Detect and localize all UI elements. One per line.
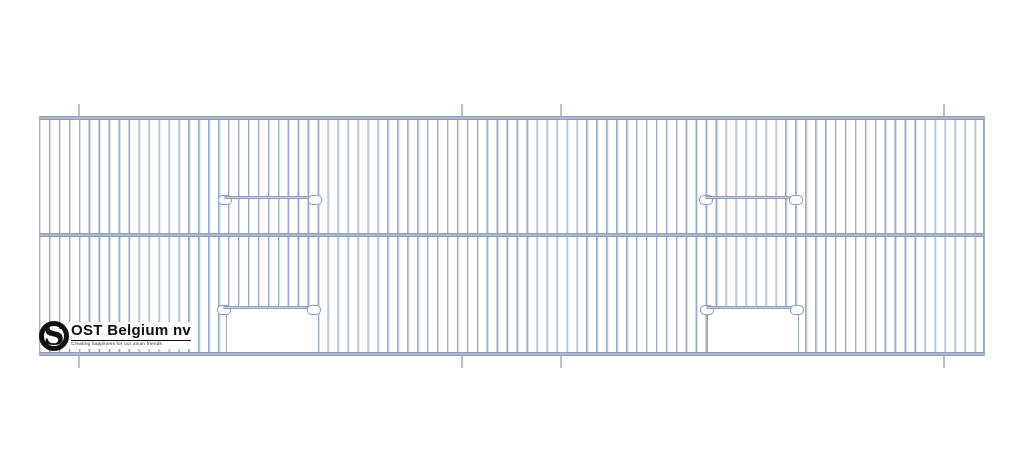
- door-bar-top-right: [699, 195, 803, 204]
- fold-mark: [560, 356, 562, 368]
- logo-company-name: OST Belgium nv: [71, 323, 191, 339]
- door-bar-top-left: [218, 195, 322, 204]
- door-bar-wire: [705, 196, 797, 199]
- top-rail: [39, 116, 985, 120]
- logo-divider: [71, 340, 191, 341]
- bottom-rail: [39, 352, 985, 356]
- fold-mark: [78, 104, 80, 116]
- logo: S OST Belgium nv Creating happiness for …: [39, 320, 195, 351]
- door-bar-wire: [223, 306, 315, 309]
- door-hook-icon: [789, 195, 803, 205]
- fold-mark: [943, 104, 945, 116]
- drawing-canvas: S OST Belgium nv Creating happiness for …: [0, 0, 1024, 473]
- door-hook-icon: [790, 305, 804, 315]
- door-opening-right: [707, 308, 799, 352]
- door-bar-wire: [224, 196, 316, 199]
- door-bar-wire: [706, 306, 798, 309]
- logo-tagline: Creating happiness for our avian friends: [71, 342, 191, 347]
- fold-mark: [461, 356, 463, 368]
- door-hook-icon: [307, 305, 321, 315]
- fold-mark: [560, 104, 562, 116]
- logo-monogram-icon: S: [39, 321, 69, 351]
- fold-mark: [78, 356, 80, 368]
- door-bar-bottom-right: [700, 305, 804, 314]
- fold-mark: [461, 104, 463, 116]
- fold-mark: [943, 356, 945, 368]
- middle-rail: [39, 233, 985, 237]
- door-bar-bottom-left: [217, 305, 321, 314]
- door-hook-icon: [308, 195, 322, 205]
- logo-monogram-letter: S: [44, 320, 65, 349]
- door-opening-left: [226, 308, 319, 352]
- logo-text-block: OST Belgium nv Creating happiness for ou…: [65, 322, 195, 349]
